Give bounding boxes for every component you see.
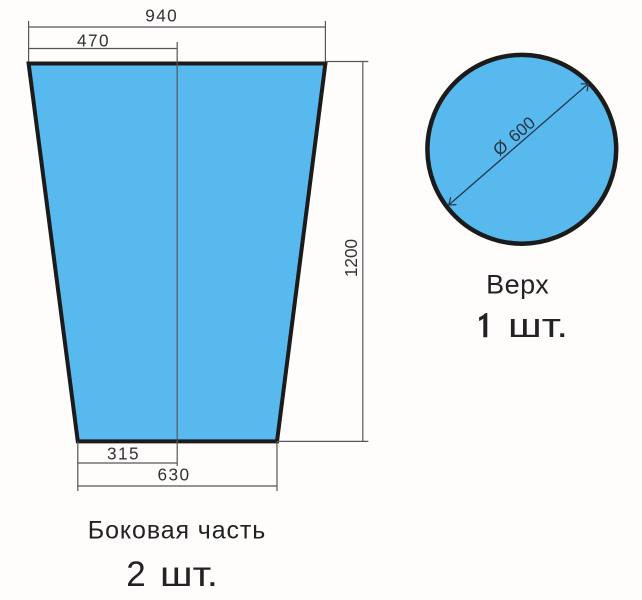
svg-text:630: 630 <box>158 464 191 484</box>
svg-text:1200: 1200 <box>341 239 361 277</box>
svg-text:940: 940 <box>145 5 178 25</box>
svg-text:470: 470 <box>77 30 110 50</box>
svg-text:шт.: шт. <box>508 307 568 345</box>
svg-text:шт.: шт. <box>160 555 218 594</box>
svg-text:Верх: Верх <box>486 269 549 299</box>
svg-text:2: 2 <box>126 555 145 594</box>
svg-text:315: 315 <box>107 443 140 463</box>
svg-text:Боковая часть: Боковая часть <box>88 517 266 545</box>
